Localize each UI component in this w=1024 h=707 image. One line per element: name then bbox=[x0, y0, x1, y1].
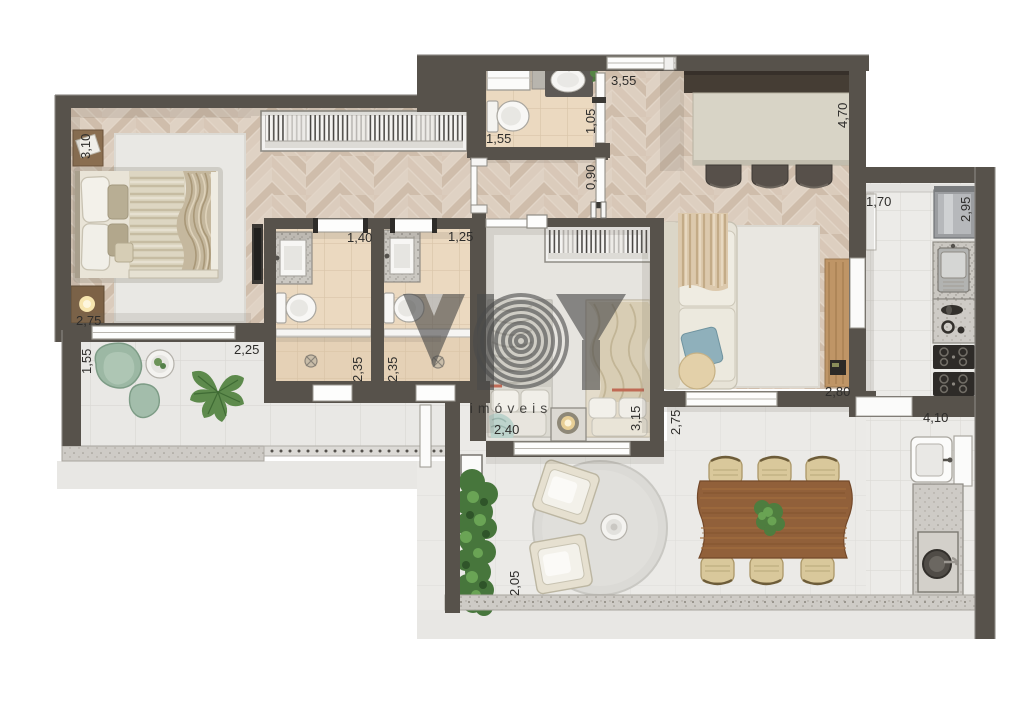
svg-text:2,40: 2,40 bbox=[494, 422, 519, 437]
svg-text:imóveis: imóveis bbox=[470, 400, 552, 416]
svg-text:3,10: 3,10 bbox=[78, 134, 93, 159]
svg-text:2,25: 2,25 bbox=[234, 342, 259, 357]
svg-text:2,75: 2,75 bbox=[76, 313, 101, 328]
svg-text:2,75: 2,75 bbox=[668, 410, 683, 435]
svg-text:2,35: 2,35 bbox=[385, 357, 400, 382]
svg-text:4,70: 4,70 bbox=[835, 103, 850, 128]
svg-text:3,55: 3,55 bbox=[611, 73, 636, 88]
svg-text:2,95: 2,95 bbox=[958, 197, 973, 222]
svg-text:1,40: 1,40 bbox=[347, 230, 372, 245]
svg-text:1,55: 1,55 bbox=[486, 131, 511, 146]
svg-text:2,80: 2,80 bbox=[825, 384, 850, 399]
svg-text:0,90: 0,90 bbox=[583, 165, 598, 190]
svg-text:1,05: 1,05 bbox=[583, 109, 598, 134]
svg-text:3,15: 3,15 bbox=[628, 406, 643, 431]
svg-text:2,35: 2,35 bbox=[350, 357, 365, 382]
svg-text:1,25: 1,25 bbox=[448, 229, 473, 244]
svg-text:4,10: 4,10 bbox=[923, 410, 948, 425]
svg-text:1,70: 1,70 bbox=[866, 194, 891, 209]
svg-text:2,05: 2,05 bbox=[507, 571, 522, 596]
svg-text:1,55: 1,55 bbox=[79, 349, 94, 374]
